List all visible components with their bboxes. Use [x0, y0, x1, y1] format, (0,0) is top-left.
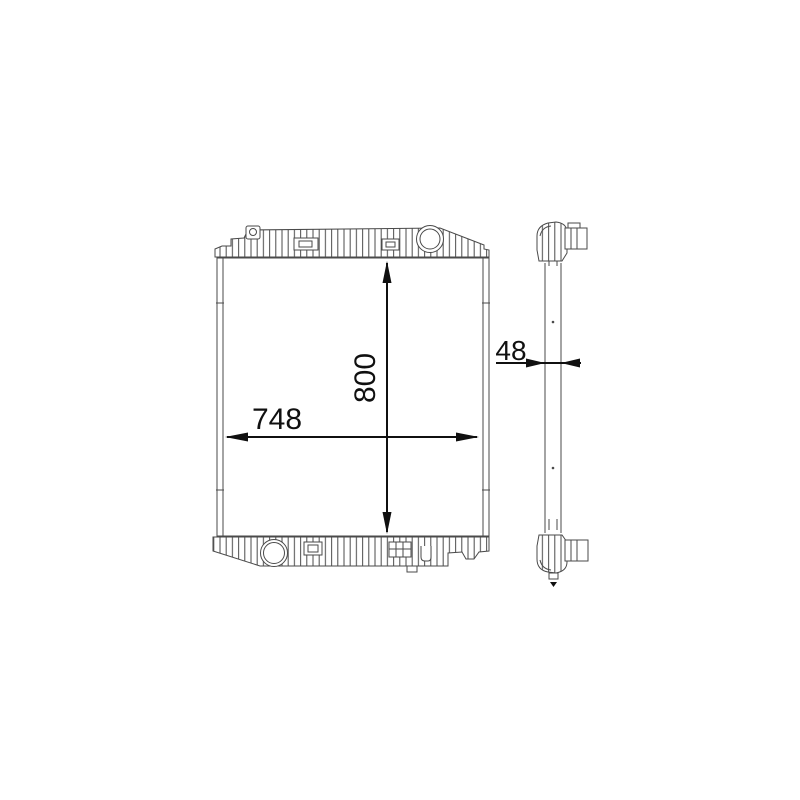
bottom-tank-hatched-body — [213, 537, 489, 566]
bottom-tank-clip — [421, 546, 431, 561]
height-dimension-label: 800 — [351, 353, 381, 403]
side-top-tank — [537, 222, 587, 261]
side-core-column — [545, 257, 561, 533]
side-core-mark-lower — [552, 467, 555, 470]
bottom-tank-bracket-left — [304, 542, 322, 555]
side-top-mount-bracket — [565, 228, 587, 249]
bottom-tank — [213, 537, 489, 572]
width-dimension-label: 748 — [252, 405, 302, 435]
side-top-tank-body — [537, 222, 567, 261]
radiator-technical-drawing: 800 748 48 — [0, 0, 800, 800]
side-core-edges — [545, 263, 561, 533]
top-tank-bracket-right — [382, 239, 399, 250]
side-core-end-ticks — [549, 257, 557, 530]
side-core-mark-upper — [552, 321, 555, 324]
side-bottom-tank-body — [537, 535, 567, 573]
drain-tab — [407, 566, 417, 572]
arrow-right-inward-icon — [526, 359, 545, 368]
side-drain-tip-icon — [550, 582, 557, 587]
drawing-canvas — [0, 0, 800, 800]
side-view — [496, 222, 588, 587]
top-tank — [215, 226, 489, 258]
arrow-left-inward-icon — [561, 359, 580, 368]
side-drain-plug — [549, 573, 558, 579]
outlet-port-outer — [261, 540, 288, 567]
side-top-mount-tab — [568, 223, 580, 228]
filler-neck-outer — [417, 226, 444, 253]
top-tank-bracket-left — [294, 238, 318, 250]
side-bottom-tank — [537, 535, 588, 587]
top-tank-mount-boss — [246, 226, 260, 239]
depth-dimension-label: 48 — [495, 337, 526, 365]
